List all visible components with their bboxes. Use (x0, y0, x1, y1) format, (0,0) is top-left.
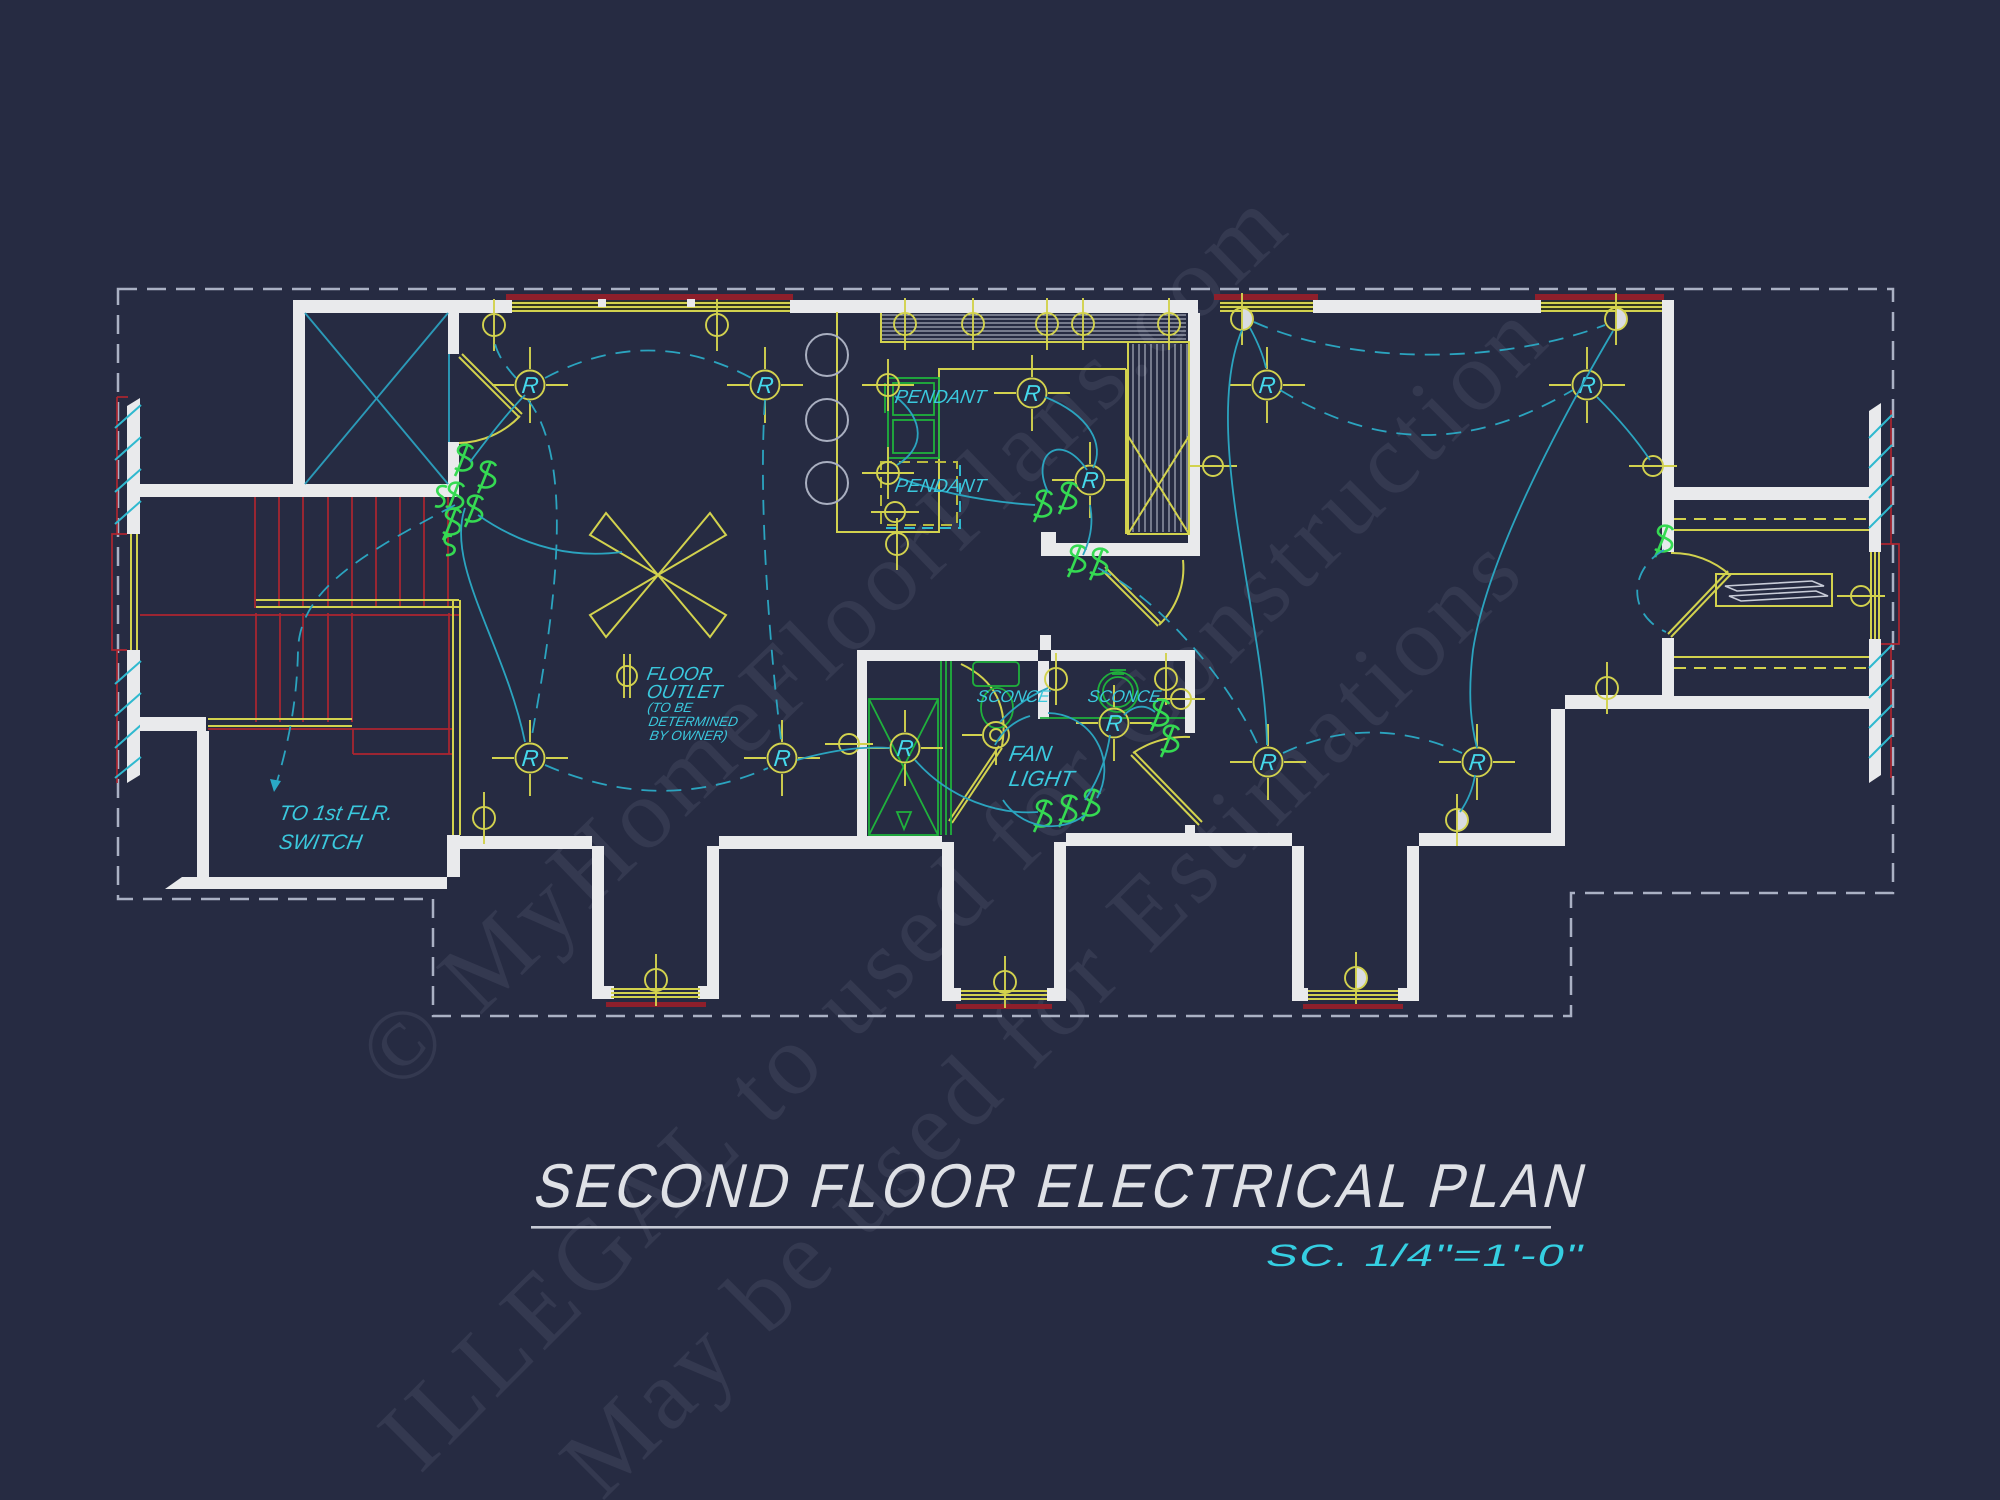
svg-text:BY OWNER): BY OWNER) (648, 728, 728, 743)
svg-text:PENDANT: PENDANT (893, 476, 989, 497)
svg-text:TO 1st FLR.: TO 1st FLR. (277, 802, 395, 825)
svg-text:SECOND FLOOR ELECTRICAL PLAN: SECOND FLOOR ELECTRICAL PLAN (528, 1152, 1597, 1221)
svg-text:(TO BE: (TO BE (646, 700, 694, 715)
svg-text:LIGHT: LIGHT (1007, 766, 1078, 791)
svg-text:FAN: FAN (1007, 741, 1055, 766)
svg-text:SCONCE: SCONCE (1086, 686, 1163, 706)
svg-text:SWITCH: SWITCH (277, 831, 365, 854)
svg-text:PENDANT: PENDANT (893, 387, 989, 408)
svg-text:SCONCE: SCONCE (975, 686, 1052, 706)
svg-text:DETERMINED: DETERMINED (647, 714, 739, 729)
svg-text:SC. 1/4"=1'-0": SC. 1/4"=1'-0" (1262, 1238, 1589, 1272)
